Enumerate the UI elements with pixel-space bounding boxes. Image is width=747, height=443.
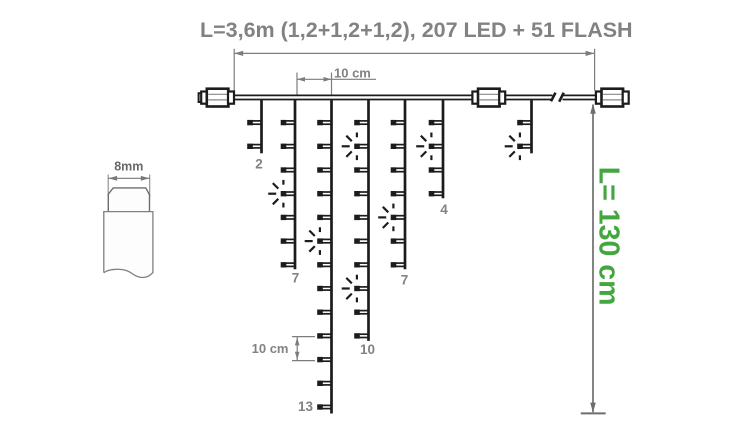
svg-text:7: 7 — [292, 271, 300, 286]
svg-text:7: 7 — [401, 273, 409, 288]
svg-text:10 cm: 10 cm — [334, 66, 371, 81]
svg-text:4: 4 — [440, 202, 448, 217]
svg-text:L=3,6m (1,2+1,2+1,2), 207 LED: L=3,6m (1,2+1,2+1,2), 207 LED + 51 FLASH — [200, 18, 633, 42]
svg-text:13: 13 — [298, 399, 314, 414]
svg-text:8mm: 8mm — [114, 159, 143, 173]
svg-text:10 cm: 10 cm — [252, 341, 289, 356]
svg-text:L= 130 cm: L= 130 cm — [593, 167, 625, 306]
svg-text:2: 2 — [255, 157, 263, 172]
svg-text:10: 10 — [360, 342, 375, 357]
